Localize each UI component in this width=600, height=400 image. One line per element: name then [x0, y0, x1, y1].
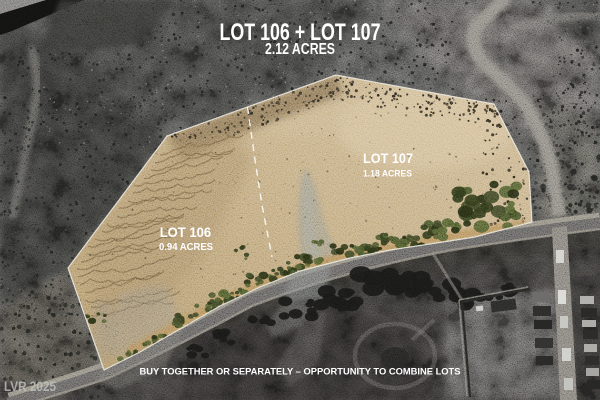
- svg-text:BUY TOGETHER OR SEPARATELY – O: BUY TOGETHER OR SEPARATELY – OPPORTUNITY…: [140, 367, 461, 377]
- svg-text:0.94 ACRES: 0.94 ACRES: [159, 242, 213, 253]
- svg-text:LVR 2025: LVR 2025: [4, 379, 56, 394]
- svg-text:1.18 ACRES: 1.18 ACRES: [363, 169, 413, 180]
- svg-text:LOT 106: LOT 106: [160, 225, 212, 240]
- svg-text:2.12 ACRES: 2.12 ACRES: [265, 41, 335, 58]
- svg-text:LOT 107: LOT 107: [363, 151, 413, 166]
